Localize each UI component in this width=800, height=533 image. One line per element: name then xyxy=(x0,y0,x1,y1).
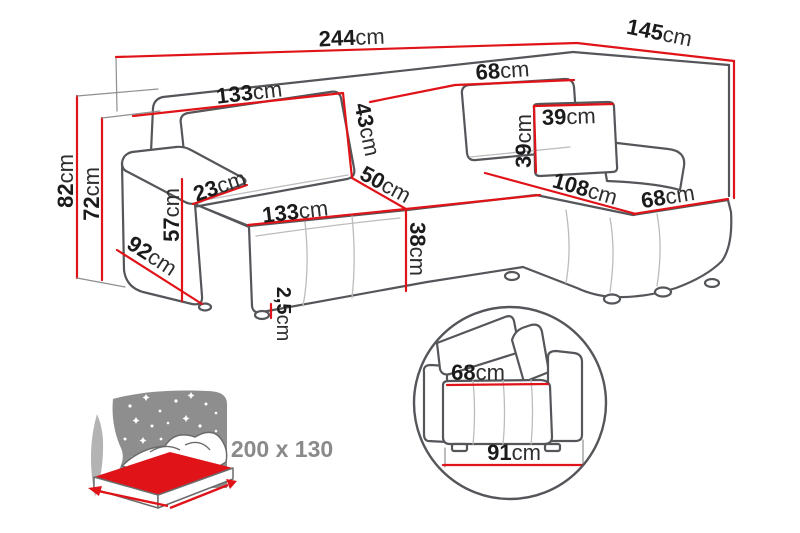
foot xyxy=(199,304,211,311)
label-total-width: 244cm xyxy=(318,24,385,52)
sleeping-area-label: 200 x 130 xyxy=(231,436,333,462)
label-back-cushion-height: 43cm xyxy=(350,101,386,159)
foot xyxy=(255,311,269,319)
label-seat-height: 38cm xyxy=(405,222,430,276)
label-chaise-back-width: 68cm xyxy=(475,56,530,85)
detail-leg xyxy=(452,444,467,451)
label-leg-height: 2,5cm xyxy=(272,287,294,341)
detail-side-panel xyxy=(548,351,582,441)
foot xyxy=(604,295,620,304)
label-pillow-width: 39cm xyxy=(541,103,596,130)
back-corner-line xyxy=(370,85,455,102)
foot xyxy=(705,279,719,287)
detail-circle: 68cm 91cm xyxy=(414,307,606,499)
label-total-depth: 145cm xyxy=(625,14,695,52)
detail-seat-block xyxy=(443,380,552,444)
sleeping-function-icon xyxy=(88,390,237,508)
label-detail-base-depth: 91cm xyxy=(487,440,541,465)
foot xyxy=(505,272,519,280)
label-total-height: 82cm xyxy=(53,154,78,208)
extension-line xyxy=(116,57,117,111)
detail-leg xyxy=(545,444,560,451)
backrest-left-edge xyxy=(151,97,163,152)
label-detail-seat-depth: 68cm xyxy=(451,360,505,385)
label-backrest-height: 72cm xyxy=(79,167,104,221)
sofa-diagram-svg: 244cm 145cm 133cm 68cm 43cm 50cm 133cm 3… xyxy=(0,0,800,533)
label-armrest-height: 57cm xyxy=(159,188,184,242)
label-pillow-height: 39cm xyxy=(511,114,536,168)
foot xyxy=(655,288,671,297)
label-seat-depth: 50cm xyxy=(356,161,415,208)
furniture-dimension-diagram: 244cm 145cm 133cm 68cm 43cm 50cm 133cm 3… xyxy=(0,0,800,533)
extension-line xyxy=(77,89,158,96)
